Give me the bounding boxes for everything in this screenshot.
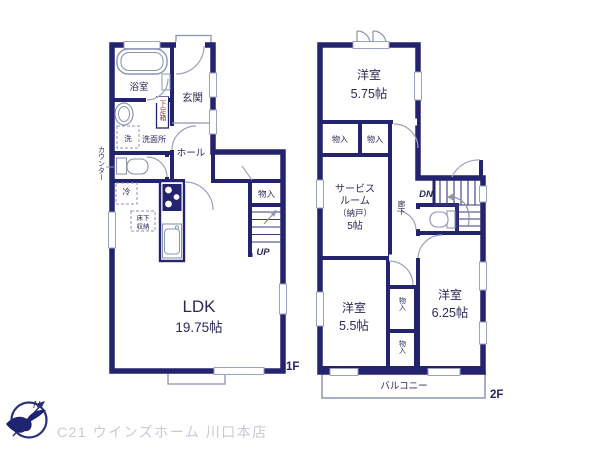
bedroom-top-label: 洋室	[357, 67, 381, 82]
floor2-tag: 2F	[490, 389, 503, 401]
bathroom-label: 浴室	[129, 81, 148, 93]
laundry-label: 洗	[124, 133, 132, 143]
service-room-label-3: （納戸）	[338, 208, 372, 218]
bedroom-top-size-label: 5.75帖	[351, 86, 388, 101]
floor1-plan: 浴室 洗 洗面所 カウンター 玄関 下足箱 ホール 冷 床下 収納 物入 UP …	[98, 36, 300, 385]
ldk-size-label: 19.75帖	[175, 320, 222, 335]
bathtub-icon	[117, 49, 167, 74]
closet1f-label: 物入	[258, 189, 276, 199]
ldk-label: LDK	[182, 297, 216, 316]
fridge-label: 冷	[123, 187, 131, 197]
floor1-tag: 1F	[286, 361, 299, 373]
washroom-label: 洗面所	[142, 134, 166, 144]
floor-storage-label-1: 床下	[137, 213, 151, 222]
entrance-hall-room	[172, 45, 213, 181]
shoe-cabinet-label: 下足箱	[159, 100, 167, 122]
stair-hall-door-arc	[452, 160, 480, 177]
service-room-label-2: ルーム	[340, 195, 370, 207]
floorplan-canvas: 浴室 洗 洗面所 カウンター 玄関 下足箱 ホール 冷 床下 収納 物入 UP …	[0, 0, 600, 450]
washbasin-icon	[115, 103, 133, 125]
toilet2f-icon	[430, 211, 455, 228]
closet-top-right-label: 物入	[367, 134, 383, 144]
bedroom-left-door-arc	[389, 261, 413, 285]
bedroom-top-door-arc	[394, 124, 418, 148]
closet-top-left-label: 物入	[332, 134, 348, 144]
awning-window-icons	[357, 31, 386, 42]
compass-north-label: N	[33, 400, 41, 411]
footer: N C21 ウインズホーム 川口本店	[6, 400, 268, 440]
bedroom-right-door-arc	[418, 235, 442, 258]
compass-icon: N	[6, 400, 47, 438]
service-room-label-4: 5帖	[347, 219, 363, 232]
bedroom-left-label: 洋室	[342, 300, 366, 315]
staircase-up	[252, 210, 281, 242]
kitchen-sink-icon	[163, 224, 182, 258]
entrance-door-arc	[176, 46, 204, 74]
closet-mid-label: 物入	[399, 296, 407, 311]
kitchen-unit-icon	[160, 181, 184, 261]
stairs-down-label: DN	[419, 189, 434, 200]
bedroom-right-label: 洋室	[438, 287, 462, 302]
floorplan-screenshot: 浴室 洗 洗面所 カウンター 玄関 下足箱 ホール 冷 床下 収納 物入 UP …	[0, 0, 600, 450]
ldk-north-strip	[213, 152, 283, 181]
entrance-label: 玄関	[182, 91, 203, 104]
bedroom-right-size-label: 6.25帖	[432, 305, 469, 320]
closet-bottom-label: 物入	[399, 339, 407, 354]
counter-label: カウンター	[98, 146, 106, 181]
ldk-room	[112, 181, 283, 371]
floor-storage-label-2: 収納	[137, 222, 150, 231]
door-leaf-line	[242, 166, 252, 180]
hall-ldk-door-arc	[185, 182, 213, 210]
washroom-door-arc	[172, 126, 196, 150]
stairs-up-label: UP	[256, 247, 270, 258]
toilet1f-icon	[117, 158, 149, 174]
corridor-label: 廊下	[397, 199, 406, 217]
service-room-label-1: サービス	[335, 183, 375, 195]
hall-label: ホール	[177, 148, 206, 159]
company-name-label: C21 ウインズホーム 川口本店	[57, 424, 268, 440]
balcony-label: バルコニー	[380, 381, 427, 392]
bedroom-top-room	[320, 45, 418, 122]
bedroom-left-size-label: 5.5帖	[339, 318, 369, 333]
floor2-plan: 洋室 5.75帖 物入 物入 サービス ルーム （納戸） 5帖 廊下 DN 洋室…	[317, 31, 504, 401]
